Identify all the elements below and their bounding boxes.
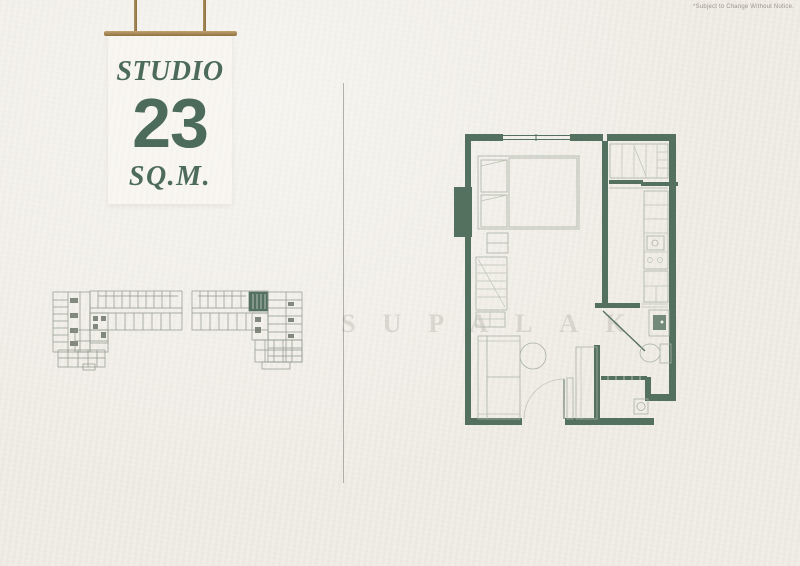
unit-floor-plan (450, 125, 695, 440)
washing-machine (634, 399, 648, 414)
toilet (640, 344, 671, 363)
bed (478, 156, 579, 229)
nightstand (487, 233, 508, 253)
tv-console (567, 347, 597, 419)
wardrobe-shelves (476, 257, 507, 327)
sign-hanger-rod (104, 31, 237, 36)
kitchen-sink (647, 236, 664, 250)
unit-area-value: 23 (132, 94, 208, 154)
closet-fridge-unit (610, 144, 668, 178)
entrance-door-swing (524, 379, 564, 419)
brochure-page: *Subject to Change Without Notice. STUDI… (0, 0, 800, 566)
building-key-plan (45, 283, 307, 371)
bathroom-sink (649, 310, 669, 336)
section-divider-line (343, 83, 344, 483)
sign-hanger-string-right (203, 0, 206, 34)
keyplan-right-wing (192, 291, 302, 369)
kitchen-counter (609, 180, 678, 188)
unit-type-label: STUDIO (116, 58, 223, 86)
keyplan-left-wing (53, 291, 182, 370)
disclaimer-text: *Subject to Change Without Notice. (693, 4, 794, 10)
round-table (520, 343, 546, 369)
sign-hanger-string-left (134, 0, 137, 34)
laundry-shelf (601, 376, 647, 380)
unit-type-sign-card: STUDIO 23 SQ.M. (108, 34, 232, 204)
unit-area-unit-label: SQ.M. (129, 163, 211, 191)
sofa (478, 336, 520, 419)
kitchen-units (644, 191, 668, 302)
wall-column (454, 187, 472, 237)
window (503, 134, 570, 141)
